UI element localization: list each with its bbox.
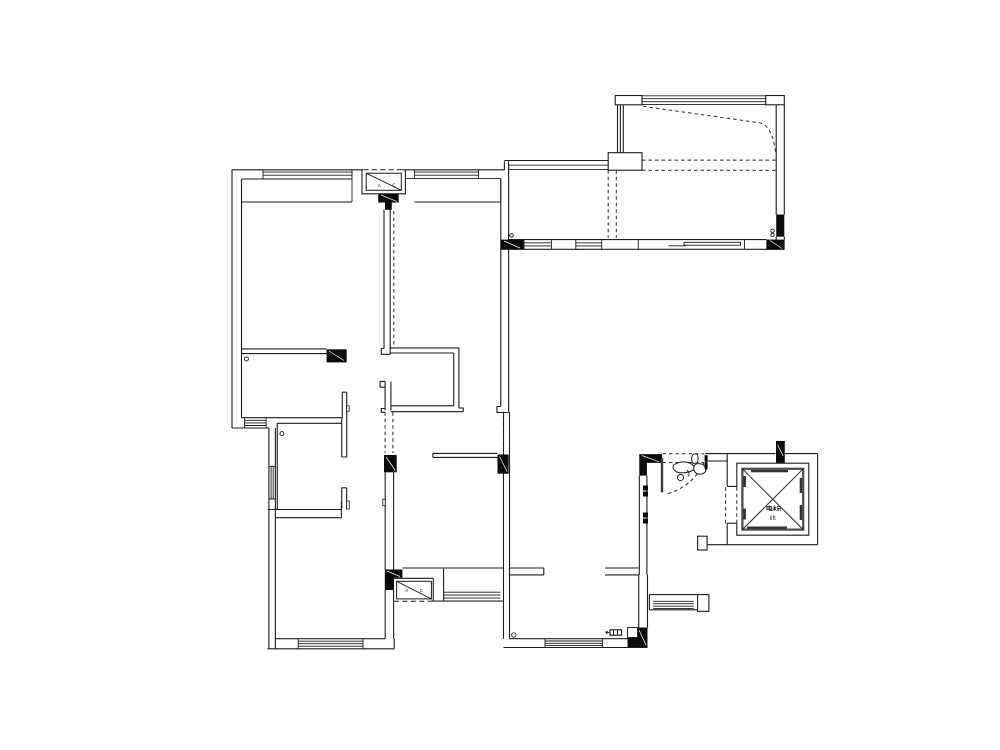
svg-text:A: A <box>405 588 408 593</box>
svg-text:C: C <box>392 182 395 187</box>
svg-text:lift: lift <box>770 516 776 522</box>
svg-text:A: A <box>378 183 381 188</box>
svg-text:C: C <box>420 588 423 593</box>
